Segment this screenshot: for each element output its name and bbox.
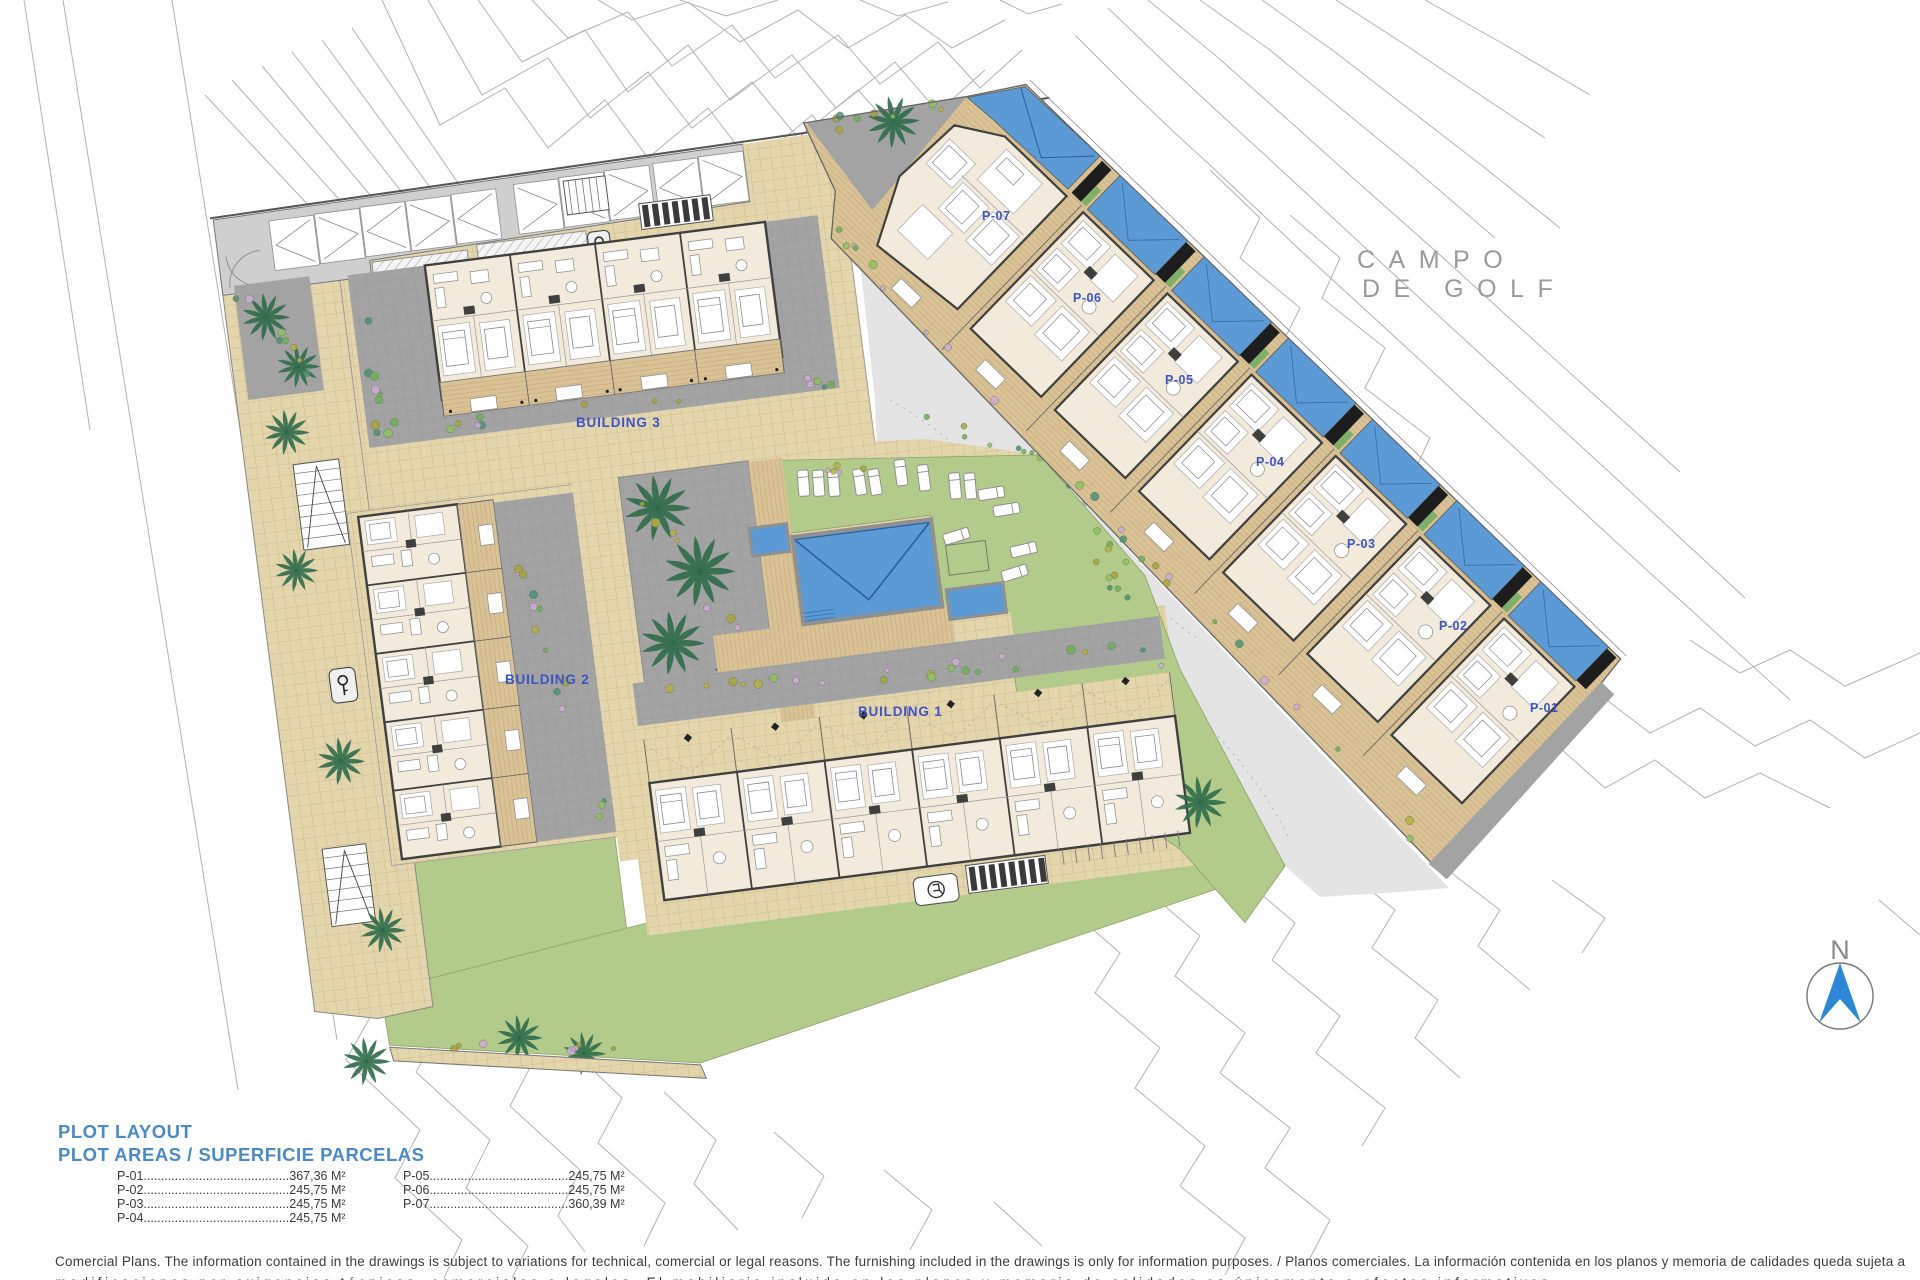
svg-text:P-07..........................: P-07....................................… bbox=[403, 1197, 625, 1211]
svg-text:P-04..........................: P-04....................................… bbox=[117, 1211, 346, 1225]
svg-text:P-02..........................: P-02....................................… bbox=[117, 1183, 346, 1197]
svg-text:P-06..........................: P-06....................................… bbox=[403, 1183, 625, 1197]
svg-text:PLOT AREAS / SUPERFICIE PARCEL: PLOT AREAS / SUPERFICIE PARCELAS bbox=[58, 1144, 425, 1165]
svg-text:P-03: P-03 bbox=[1347, 537, 1375, 551]
svg-text:CAMPO: CAMPO bbox=[1357, 246, 1516, 274]
svg-text:P-07: P-07 bbox=[982, 209, 1010, 223]
svg-text:P-05..........................: P-05....................................… bbox=[403, 1169, 625, 1183]
svg-text:P-03..........................: P-03....................................… bbox=[117, 1197, 346, 1211]
svg-text:BUILDING 2: BUILDING 2 bbox=[505, 672, 590, 687]
svg-text:BUILDING 1: BUILDING 1 bbox=[858, 704, 943, 719]
svg-text:P-01..........................: P-01....................................… bbox=[117, 1169, 346, 1183]
svg-text:N: N bbox=[1830, 935, 1850, 965]
svg-text:P-01: P-01 bbox=[1530, 701, 1558, 715]
svg-text:P-02: P-02 bbox=[1439, 619, 1467, 633]
svg-text:P-06: P-06 bbox=[1073, 291, 1101, 305]
svg-text:P-04: P-04 bbox=[1256, 455, 1284, 469]
svg-text:BUILDING 3: BUILDING 3 bbox=[576, 415, 661, 430]
svg-text:Comercial Plans. The informati: Comercial Plans. The information contain… bbox=[55, 1254, 1905, 1269]
svg-text:modificaciones por exigencias: modificaciones por exigencias técnicas, … bbox=[55, 1275, 1555, 1280]
svg-text:P-05: P-05 bbox=[1165, 373, 1193, 387]
svg-text:PLOT LAYOUT: PLOT LAYOUT bbox=[58, 1121, 193, 1142]
svg-text:DE GOLF: DE GOLF bbox=[1362, 275, 1566, 303]
